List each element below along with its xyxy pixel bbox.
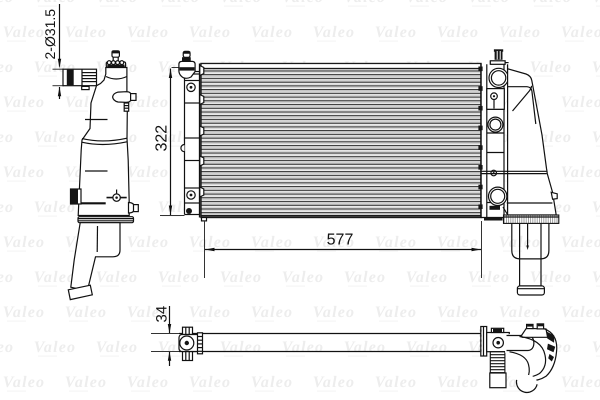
svg-text:Valeo: Valeo xyxy=(406,339,448,356)
svg-text:Valeo: Valeo xyxy=(34,339,76,356)
svg-text:Valeo: Valeo xyxy=(220,0,262,6)
svg-text:Valeo: Valeo xyxy=(344,269,386,286)
svg-text:Valeo: Valeo xyxy=(530,269,572,286)
svg-text:Valeo: Valeo xyxy=(3,24,45,41)
svg-text:Valeo: Valeo xyxy=(251,304,293,321)
svg-text:Valeo: Valeo xyxy=(3,94,45,111)
svg-text:Valeo: Valeo xyxy=(592,199,600,216)
svg-text:Valeo: Valeo xyxy=(561,234,600,251)
svg-text:Valeo: Valeo xyxy=(251,374,293,391)
svg-text:Valeo: Valeo xyxy=(499,304,541,321)
svg-text:Valeo: Valeo xyxy=(96,0,138,6)
svg-text:Valeo: Valeo xyxy=(220,269,262,286)
svg-text:Valeo: Valeo xyxy=(3,304,45,321)
svg-text:Valeo: Valeo xyxy=(3,164,45,181)
svg-text:Valeo: Valeo xyxy=(375,24,417,41)
svg-text:Valeo: Valeo xyxy=(499,24,541,41)
svg-text:Valeo: Valeo xyxy=(127,164,169,181)
svg-text:322: 322 xyxy=(154,125,171,152)
svg-text:Valeo: Valeo xyxy=(65,304,107,321)
svg-text:Valeo: Valeo xyxy=(437,374,479,391)
svg-text:Valeo: Valeo xyxy=(437,304,479,321)
svg-text:Valeo: Valeo xyxy=(96,269,138,286)
svg-text:Valeo: Valeo xyxy=(65,24,107,41)
svg-text:Valeo: Valeo xyxy=(282,269,324,286)
svg-text:Valeo: Valeo xyxy=(282,339,324,356)
svg-text:Valeo: Valeo xyxy=(0,339,14,356)
svg-text:Valeo: Valeo xyxy=(375,234,417,251)
svg-text:Valeo: Valeo xyxy=(127,234,169,251)
svg-text:Valeo: Valeo xyxy=(561,94,600,111)
svg-text:2-Ø31.5: 2-Ø31.5 xyxy=(42,9,58,60)
svg-text:Valeo: Valeo xyxy=(0,199,14,216)
svg-text:Valeo: Valeo xyxy=(313,374,355,391)
svg-text:Valeo: Valeo xyxy=(34,199,76,216)
svg-text:577: 577 xyxy=(327,232,354,249)
svg-text:Valeo: Valeo xyxy=(127,374,169,391)
svg-text:Valeo: Valeo xyxy=(406,0,448,6)
svg-text:Valeo: Valeo xyxy=(313,24,355,41)
svg-text:Valeo: Valeo xyxy=(65,374,107,391)
svg-text:Valeo: Valeo xyxy=(220,339,262,356)
svg-text:Valeo: Valeo xyxy=(530,59,572,76)
svg-text:Valeo: Valeo xyxy=(375,304,417,321)
svg-text:Valeo: Valeo xyxy=(592,339,600,356)
svg-text:Valeo: Valeo xyxy=(96,339,138,356)
svg-text:Valeo: Valeo xyxy=(189,234,231,251)
svg-text:Valeo: Valeo xyxy=(561,304,600,321)
svg-text:Valeo: Valeo xyxy=(189,24,231,41)
svg-text:Valeo: Valeo xyxy=(437,24,479,41)
svg-text:Valeo: Valeo xyxy=(375,374,417,391)
svg-text:Valeo: Valeo xyxy=(158,269,200,286)
svg-text:Valeo: Valeo xyxy=(251,24,293,41)
svg-text:Valeo: Valeo xyxy=(313,304,355,321)
svg-text:Valeo: Valeo xyxy=(0,59,14,76)
svg-text:Valeo: Valeo xyxy=(127,24,169,41)
svg-text:Valeo: Valeo xyxy=(158,0,200,6)
svg-text:Valeo: Valeo xyxy=(189,374,231,391)
svg-text:34: 34 xyxy=(154,306,171,323)
svg-text:Valeo: Valeo xyxy=(592,59,600,76)
svg-text:Valeo: Valeo xyxy=(468,269,510,286)
svg-text:Valeo: Valeo xyxy=(468,0,510,6)
svg-text:Valeo: Valeo xyxy=(592,269,600,286)
svg-text:Valeo: Valeo xyxy=(189,304,231,321)
svg-text:Valeo: Valeo xyxy=(561,24,600,41)
svg-text:Valeo: Valeo xyxy=(282,0,324,6)
svg-text:Valeo: Valeo xyxy=(34,269,76,286)
svg-text:Valeo: Valeo xyxy=(344,0,386,6)
svg-text:Valeo: Valeo xyxy=(592,129,600,146)
svg-text:Valeo: Valeo xyxy=(3,234,45,251)
svg-text:Valeo: Valeo xyxy=(530,0,572,6)
svg-text:Valeo: Valeo xyxy=(34,0,76,6)
svg-text:Valeo: Valeo xyxy=(561,374,600,391)
svg-text:Valeo: Valeo xyxy=(0,0,14,6)
svg-text:Valeo: Valeo xyxy=(406,269,448,286)
svg-text:Valeo: Valeo xyxy=(34,129,76,146)
svg-text:Valeo: Valeo xyxy=(592,0,600,6)
svg-text:Valeo: Valeo xyxy=(251,234,293,251)
svg-text:Valeo: Valeo xyxy=(0,129,14,146)
svg-text:Valeo: Valeo xyxy=(344,339,386,356)
svg-text:Valeo: Valeo xyxy=(561,164,600,181)
svg-text:Valeo: Valeo xyxy=(3,374,45,391)
svg-text:Valeo: Valeo xyxy=(0,269,14,286)
